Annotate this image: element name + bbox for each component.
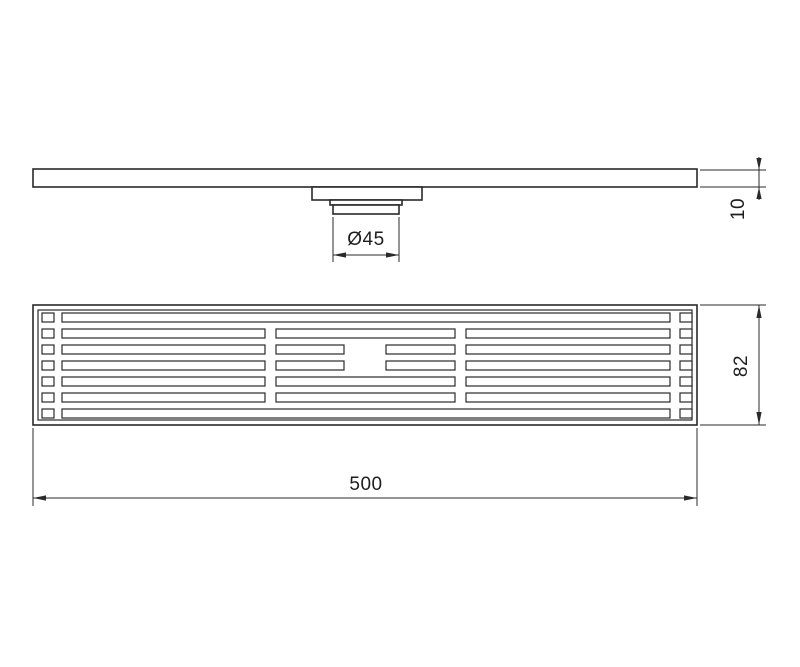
grate-slot-row	[42, 409, 692, 418]
arrowhead-up-icon	[756, 187, 761, 199]
dimension-drain-length: 500	[33, 428, 697, 506]
grate-slot	[466, 329, 670, 338]
grate-slot-square	[42, 409, 54, 418]
dimension-outlet-diameter: Ø45	[333, 217, 399, 262]
grate-slot-square	[42, 361, 54, 370]
grate-slot-square	[42, 329, 54, 338]
dimension-label-drain-length: 500	[349, 474, 382, 495]
grate-slot	[466, 345, 670, 354]
grate-slot	[276, 377, 455, 386]
grate-slot	[386, 345, 455, 354]
grate-slot	[276, 393, 455, 402]
grate-slot	[276, 345, 344, 354]
grate-slot	[62, 361, 265, 370]
grate-slot	[62, 393, 265, 402]
outlet-flange	[312, 187, 422, 200]
arrowhead-left-icon	[33, 495, 46, 500]
arrowhead-right-icon	[684, 495, 697, 500]
grate-slot	[276, 329, 455, 338]
drain-channel-profile	[33, 169, 697, 187]
grate-slot	[276, 361, 344, 370]
dimension-drain-width: 82	[700, 305, 766, 425]
grate-slot	[466, 361, 670, 370]
arrowhead-left-icon	[333, 252, 346, 257]
grate-slot	[466, 377, 670, 386]
outlet-tube	[333, 205, 399, 214]
grate-slot	[62, 409, 670, 418]
arrowhead-down-icon	[756, 412, 761, 425]
grate-slot	[62, 377, 265, 386]
grate-slot-square	[680, 361, 692, 370]
grate-slot-square	[42, 345, 54, 354]
grate-slot	[62, 329, 265, 338]
technical-drawing-svg: Ø45 10	[0, 0, 800, 667]
side-elevation-view	[33, 169, 697, 214]
grate-slot-square	[680, 329, 692, 338]
dimension-label-profile-height: 10	[728, 198, 749, 220]
drawing-canvas: Ø45 10	[0, 0, 800, 667]
grate-slot-square	[680, 393, 692, 402]
grate-slot-row	[42, 313, 692, 322]
arrowhead-up-icon	[756, 305, 761, 318]
grate-slot	[62, 313, 670, 322]
grate-slot-square	[680, 377, 692, 386]
arrowhead-down-icon	[756, 158, 761, 170]
grate-slot-square	[42, 393, 54, 402]
grate-slot-square	[680, 345, 692, 354]
grate-slot	[386, 361, 455, 370]
grate-slot-square	[42, 313, 54, 322]
grate-slot-row	[42, 393, 692, 402]
arrowhead-right-icon	[386, 252, 399, 257]
grate-slot-square	[680, 409, 692, 418]
dimension-label-drain-width: 82	[731, 355, 752, 377]
dimension-label-outlet-diameter: Ø45	[347, 229, 384, 250]
grate-slot-square	[42, 377, 54, 386]
grate-slot-square	[680, 313, 692, 322]
dimension-profile-height: 10	[700, 157, 766, 220]
grate-slot-row	[42, 329, 692, 338]
grate-slot	[62, 345, 265, 354]
grate-slot-row	[42, 377, 692, 386]
grate-slot	[466, 393, 670, 402]
grate-plan-view	[33, 305, 697, 425]
